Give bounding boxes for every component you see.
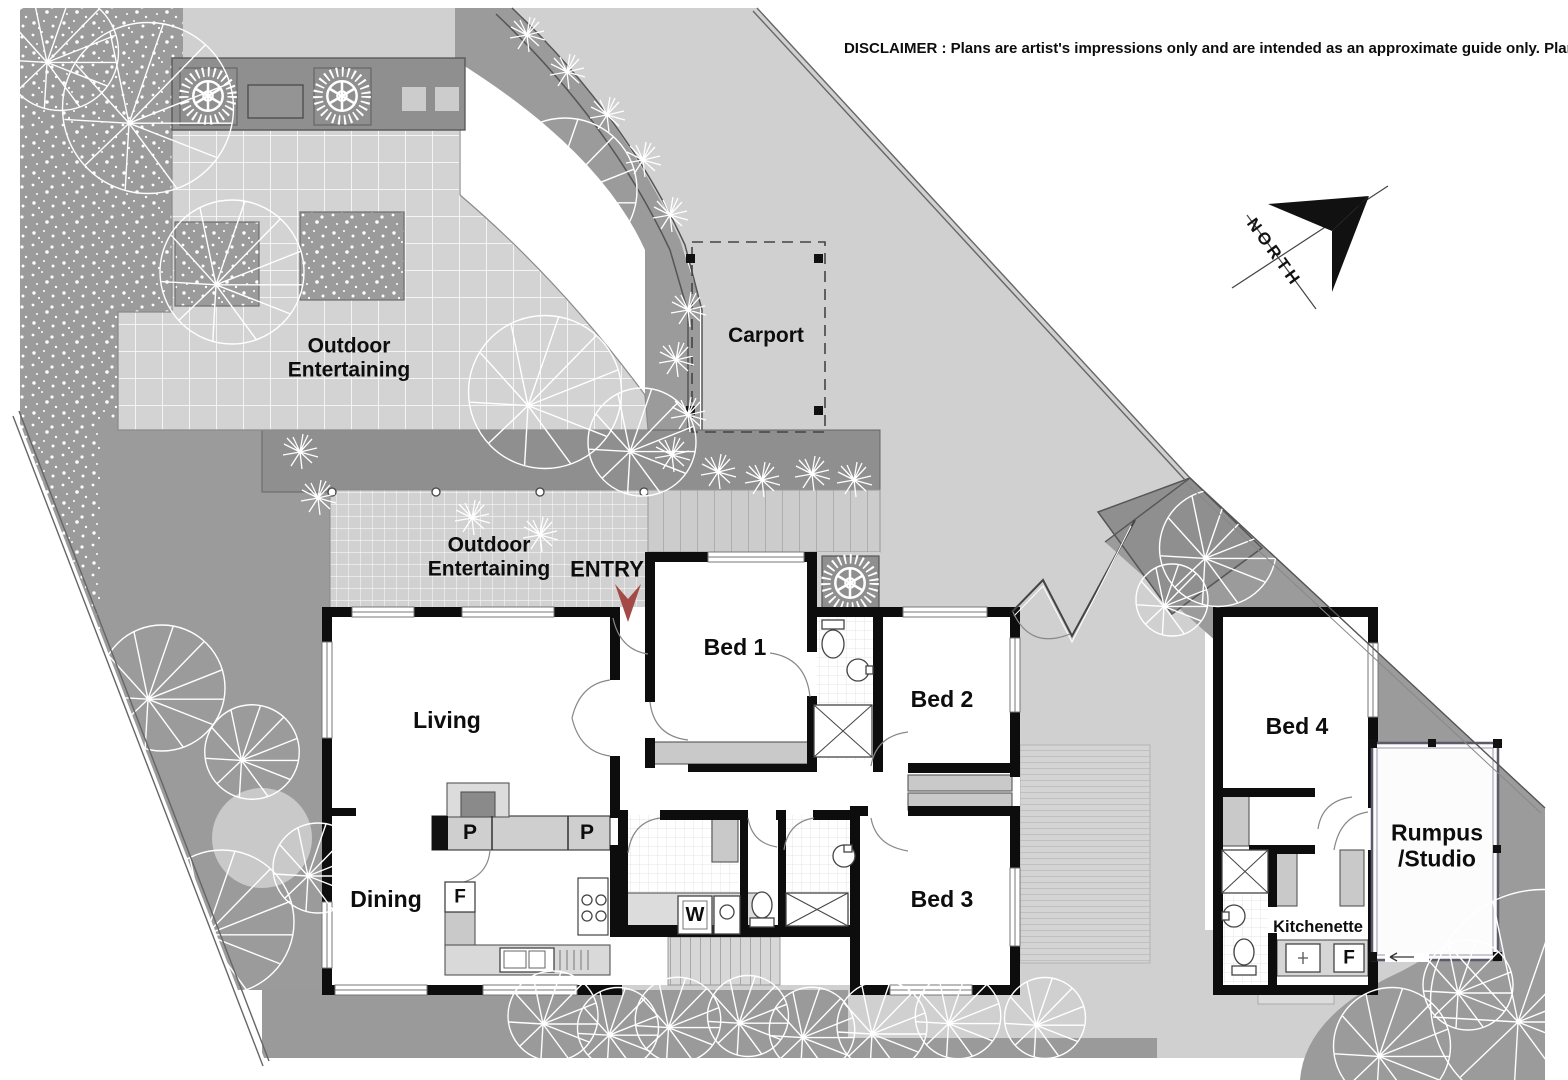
planter-band [172,58,465,130]
label-bed1: Bed 1 [704,635,767,661]
label-kitchenette: Kitchenette [1273,918,1363,936]
label-outdoor-entertaining-1: OutdoorEntertaining [288,334,411,381]
label-kitchenette-fridge: F [1343,947,1355,968]
label-fridge: F [454,886,466,907]
label-outdoor-entertaining-2: OutdoorEntertaining [428,533,551,580]
label-bed2: Bed 2 [911,687,974,713]
label-pantry-left: P [463,821,477,845]
label-entry: ENTRY [570,558,644,583]
front-porch-deck [648,490,880,552]
toilet-icon [1234,939,1254,965]
label-bed3: Bed 3 [911,887,974,913]
disclaimer-text: DISCLAIMER : Plans are artist's impressi… [844,40,1568,58]
label-dining: Dining [350,887,422,913]
label-living: Living [413,708,481,734]
label-bed4: Bed 4 [1266,714,1329,740]
garden-strip-mid [262,430,880,492]
label-washer: W [686,904,705,926]
north-compass [1232,186,1388,309]
laundry-tub [714,896,740,934]
toilet-icon [752,892,772,918]
label-carport: Carport [728,324,804,348]
rear-deck [1020,745,1150,963]
label-rumpus-studio: Rumpus/Studio [1391,820,1483,872]
label-pantry-right: P [580,821,594,845]
granny-flat [1213,607,1378,995]
toilet-icon [822,630,844,658]
floor-plan-canvas: DISCLAIMER : Plans are artist's impressi… [0,0,1568,1080]
